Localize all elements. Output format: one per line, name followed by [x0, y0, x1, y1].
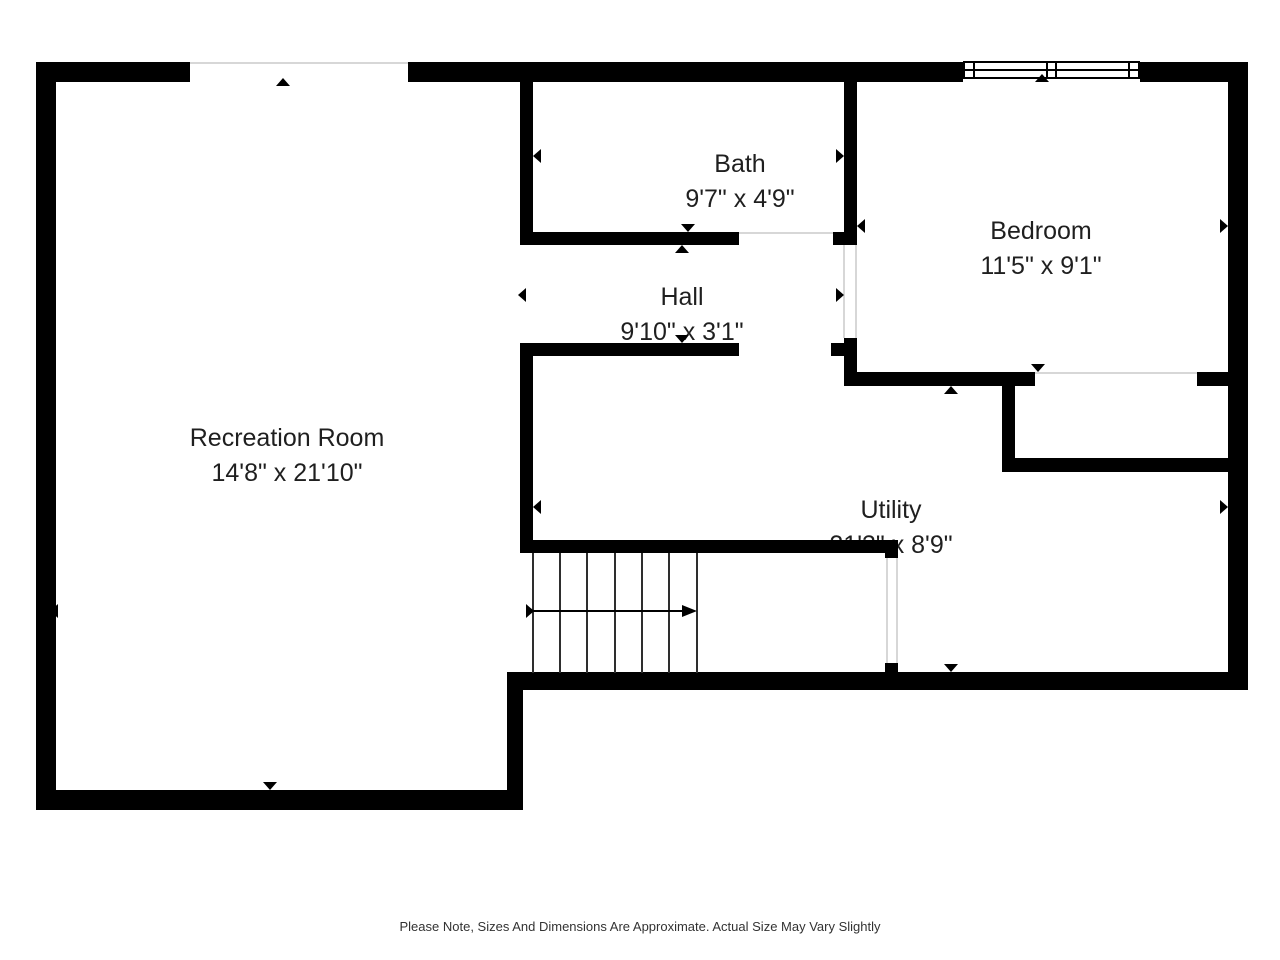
opening-line-bedroom-door-right — [855, 245, 857, 338]
opening-line-rec-top — [190, 62, 408, 64]
room-name: Recreation Room — [190, 421, 385, 456]
dim-marker-left-icon — [533, 149, 541, 163]
wall-bath-left — [520, 62, 533, 245]
room-name: Utility — [829, 493, 952, 528]
room-name: Hall — [620, 280, 743, 315]
dim-marker-left-icon — [533, 500, 541, 514]
dim-marker-left-icon — [518, 288, 526, 302]
dim-marker-down-icon — [1031, 364, 1045, 372]
disclaimer-note: Please Note, Sizes And Dimensions Are Ap… — [0, 918, 1280, 936]
wall-outer-left — [36, 62, 56, 810]
dim-marker-left-icon — [50, 604, 58, 618]
wall-bedroom-bottom — [844, 372, 1035, 386]
dim-marker-up-icon — [675, 245, 689, 253]
dim-marker-down-icon — [944, 664, 958, 672]
wall-stairwell-top — [520, 540, 887, 553]
wall-hall-bottom — [520, 343, 739, 356]
stair-direction-line — [530, 610, 684, 612]
room-name: Bedroom — [980, 214, 1101, 249]
wall-closet-bottom — [1002, 458, 1228, 472]
stair-direction-arrow-icon — [682, 605, 697, 617]
room-dimensions: 9'7" x 4'9" — [685, 182, 794, 217]
stair-tread — [668, 553, 670, 673]
room-dimensions: 11'5" x 9'1" — [980, 249, 1101, 284]
room-label-recreation-room: Recreation Room 14'8" x 21'10" — [190, 421, 385, 491]
wall-bath-bottom — [520, 232, 739, 245]
wall-stair-door-bottom-stub — [885, 663, 898, 673]
window-symbol — [963, 61, 1140, 79]
dim-marker-up-icon — [681, 74, 695, 82]
dim-marker-up-icon — [1035, 74, 1049, 82]
dim-marker-up-icon — [276, 78, 290, 86]
dim-marker-right-icon — [1220, 500, 1228, 514]
stair-tread — [559, 553, 561, 673]
dim-marker-down-icon — [675, 335, 689, 343]
dim-marker-down-icon — [681, 224, 695, 232]
wall-outer-top-left — [36, 62, 190, 82]
stair-tread — [614, 553, 616, 673]
dim-marker-down-icon — [263, 782, 277, 790]
room-dimensions: 14'8" x 21'10" — [190, 456, 385, 491]
dim-marker-up-icon — [944, 386, 958, 394]
stair-tread — [641, 553, 643, 673]
dim-marker-right-icon — [526, 604, 534, 618]
dim-marker-left-icon — [857, 219, 865, 233]
room-label-bedroom: Bedroom 11'5" x 9'1" — [980, 214, 1101, 284]
wall-outer-bottom-left — [36, 790, 523, 810]
room-name: Bath — [685, 147, 794, 182]
stair-tread — [586, 553, 588, 673]
wall-bedroom-left-upper — [844, 62, 857, 245]
dim-marker-right-icon — [836, 149, 844, 163]
opening-line-bath-door — [739, 232, 833, 234]
wall-closet-left — [1002, 386, 1015, 458]
opening-line-stair-door-left — [886, 558, 888, 663]
opening-line-closet-door — [1035, 372, 1197, 374]
room-label-bath: Bath 9'7" x 4'9" — [685, 147, 794, 217]
wall-stair-door-top-stub — [885, 540, 898, 558]
wall-utility-left — [520, 343, 533, 553]
opening-line-stair-door-right — [896, 558, 898, 663]
wall-hall-bottom-stub — [831, 343, 844, 356]
dim-marker-right-icon — [836, 288, 844, 302]
floor-plan-canvas: Recreation Room 14'8" x 21'10" Bath 9'7"… — [0, 0, 1280, 960]
wall-bedroom-bottom-end — [1197, 372, 1228, 386]
window-sash-line — [965, 69, 1138, 71]
wall-outer-right — [1228, 62, 1248, 690]
staircase — [532, 553, 698, 673]
wall-outer-bottom-right — [507, 672, 1248, 690]
dim-marker-right-icon — [1220, 219, 1228, 233]
